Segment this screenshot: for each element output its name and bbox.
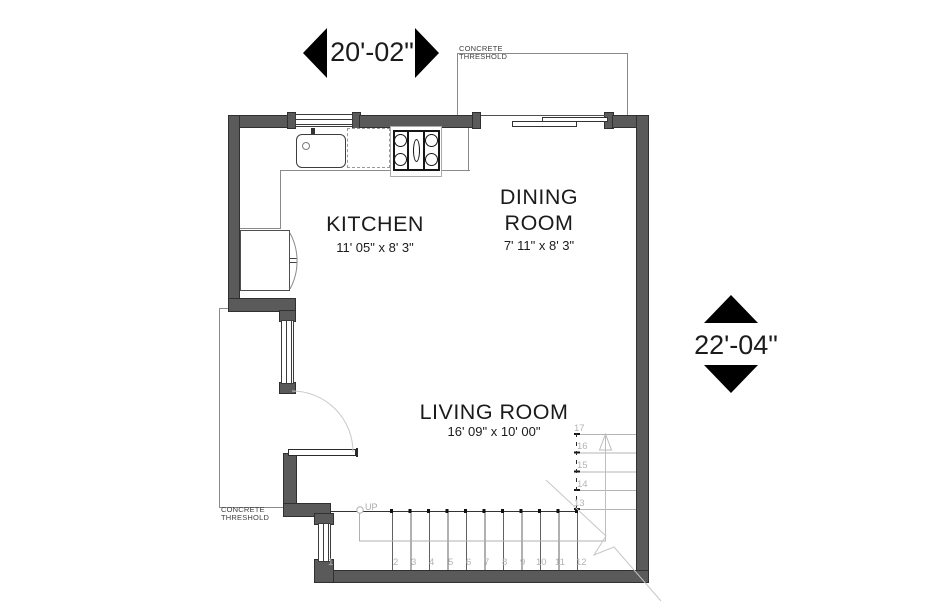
counter-edge: [468, 128, 469, 170]
tread-number: 2: [393, 558, 398, 568]
up-arrow-icon: [704, 295, 758, 323]
floor-plan: 20'-02" 22'-04" CONCRETE THRESHOLD CONCR…: [0, 0, 952, 614]
stove-center-burner: [413, 139, 420, 162]
tread-number: 7: [484, 558, 489, 568]
tread-number: 12: [576, 558, 587, 568]
entry-door-leaf: [288, 449, 356, 456]
tread-number: 10: [536, 558, 547, 568]
tread-number: 3: [411, 558, 416, 568]
refrigerator-handle: [289, 258, 297, 263]
kitchen-sink: [296, 134, 346, 168]
concrete-threshold-top: [457, 53, 628, 115]
right-arrow-icon: [415, 28, 439, 78]
window-glazing-lines: [286, 321, 292, 383]
stair-walk-start: [357, 507, 363, 513]
sliding-door-panel: [542, 117, 608, 122]
dishwasher: [347, 128, 390, 168]
living-room-label: LIVING ROOM: [394, 400, 594, 425]
tread-number: 1: [328, 558, 333, 568]
down-arrow-icon: [704, 365, 758, 393]
door-swing-arc: [292, 391, 353, 452]
tread-number: 15: [577, 461, 588, 471]
wall-segment: [228, 115, 240, 312]
sliding-door-track: [481, 115, 605, 116]
living-room-size-label: 16' 09" x 10' 00": [394, 424, 594, 439]
window-glazing-lines: [323, 524, 329, 561]
dining-room-label-line1: DINING: [439, 185, 639, 210]
concrete-threshold-top-label: CONCRETE THRESHOLD: [459, 45, 507, 61]
dining-room-size-label: 7' 11" x 8' 3": [439, 238, 639, 253]
left-window: [281, 320, 294, 384]
stair-riser-ticks: [390, 509, 579, 513]
wall-segment: [283, 453, 297, 505]
stove-burner: [425, 134, 438, 147]
tread-number: 8: [502, 558, 507, 568]
stove-divider: [407, 130, 409, 171]
kitchen-window: [295, 114, 353, 127]
tread-number: 4: [429, 558, 434, 568]
concrete-threshold-left: [219, 308, 283, 508]
stove-burner: [394, 153, 407, 166]
stove-burner: [394, 134, 407, 147]
tread-number: 13: [574, 499, 585, 509]
stove-burner: [425, 153, 438, 166]
concrete-threshold-left-label: CONCRETE THRESHOLD: [221, 506, 269, 522]
wall-segment: [316, 570, 649, 583]
window-glazing-lines: [296, 119, 352, 125]
entry-door-stop: [356, 448, 358, 457]
height-dimension-label: 22'-04": [688, 330, 784, 361]
tread-number: 16: [577, 442, 588, 452]
door-jamb: [472, 112, 481, 129]
threshold-label-line2: THRESHOLD: [221, 514, 269, 522]
sink-drain: [302, 142, 310, 150]
tread-number: 5: [448, 558, 453, 568]
width-dimension-label: 20'-02": [320, 37, 424, 68]
dining-room-label-line2: ROOM: [439, 211, 639, 236]
sink-faucet: [311, 128, 315, 134]
tread-number: 9: [520, 558, 525, 568]
stair-up-label: UP: [365, 502, 378, 512]
tread-number: 6: [466, 558, 471, 568]
tread-number: 14: [577, 480, 588, 490]
tread-number: 11: [555, 558, 565, 568]
stove-divider: [423, 130, 425, 171]
threshold-label-line2: THRESHOLD: [459, 53, 507, 61]
